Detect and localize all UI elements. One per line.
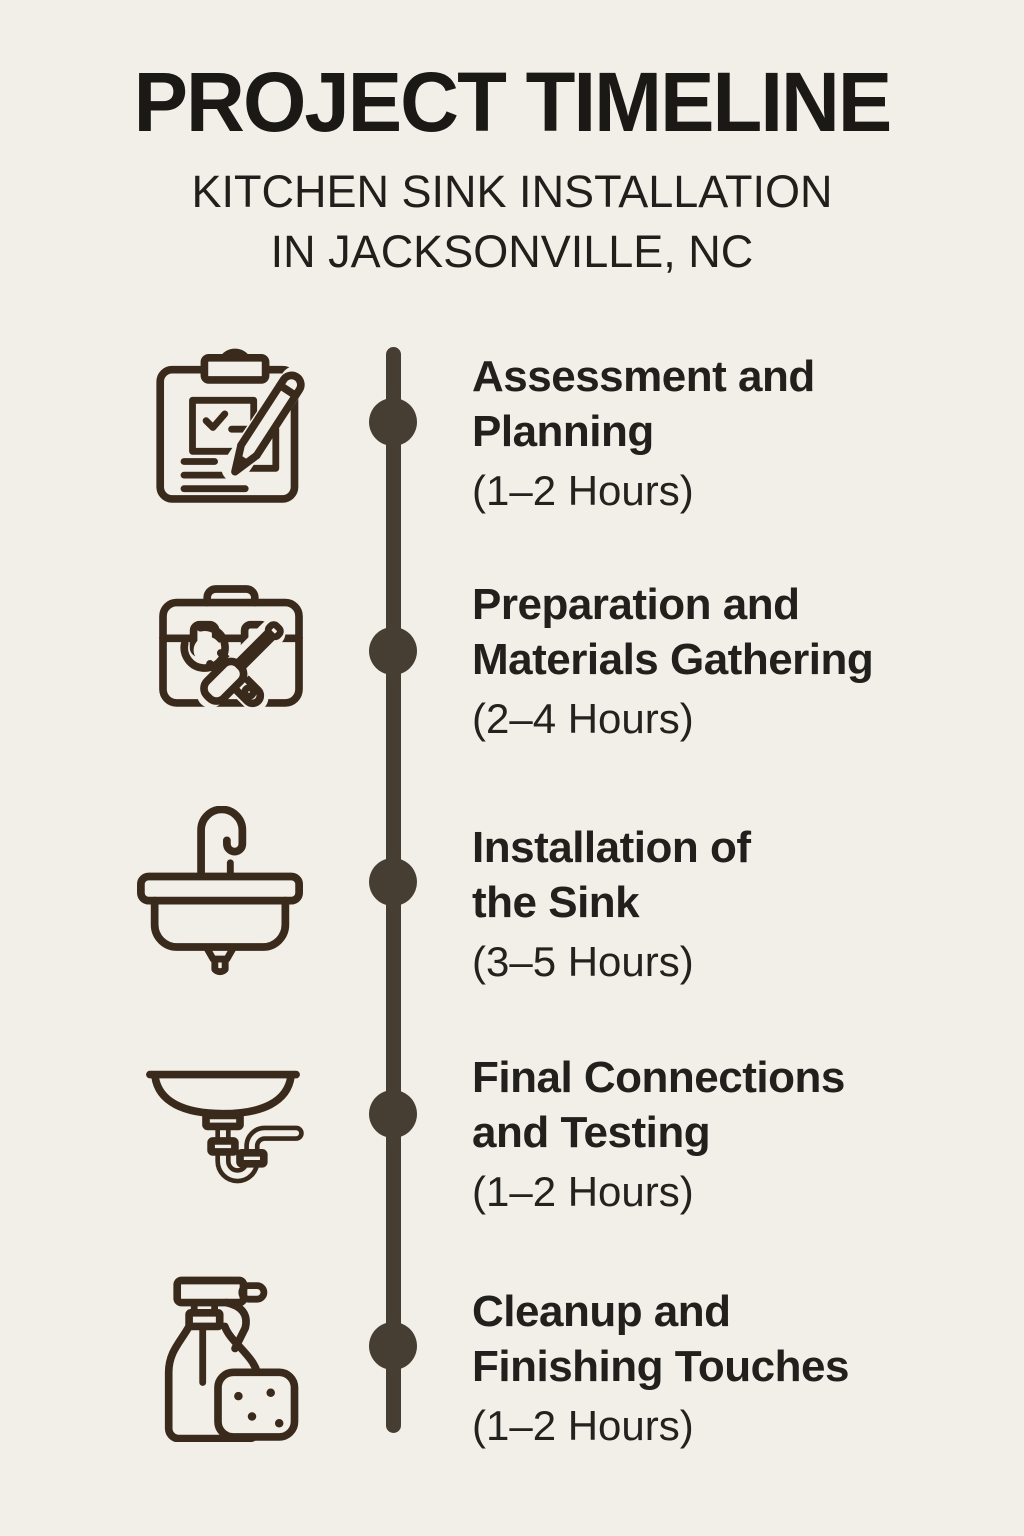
kitchen-sink-icon — [133, 806, 307, 978]
timeline-item-cleanup: Cleanup and Finishing Touches (1–2 Hours… — [472, 1284, 849, 1451]
page-subtitle: KITCHEN SINK INSTALLATION IN JACKSONVILL… — [0, 162, 1024, 282]
timeline-dot — [369, 398, 417, 446]
timeline-item-installation: Installation of the Sink (3–5 Hours) — [472, 820, 751, 987]
subtitle-line: IN JACKSONVILLE, NC — [0, 222, 1024, 282]
drain-pipe-icon — [138, 1044, 308, 1214]
infographic-page: PROJECT TIMELINE KITCHEN SINK INSTALLATI… — [0, 0, 1024, 1536]
timeline-dot — [369, 1322, 417, 1370]
item-duration: (2–4 Hours) — [472, 694, 873, 744]
item-title: Assessment and Planning — [472, 349, 815, 459]
clipboard-pencil-icon — [150, 334, 320, 504]
item-duration: (3–5 Hours) — [472, 937, 751, 987]
item-title: Cleanup and Finishing Touches — [472, 1284, 849, 1394]
timeline-item-assessment: Assessment and Planning (1–2 Hours) — [472, 349, 815, 516]
item-duration: (1–2 Hours) — [472, 1167, 845, 1217]
item-title: Installation of the Sink — [472, 820, 751, 930]
timeline-item-preparation: Preparation and Materials Gathering (2–4… — [472, 577, 873, 744]
page-title: PROJECT TIMELINE — [15, 58, 1008, 146]
timeline-dot — [369, 858, 417, 906]
item-title: Final Connections and Testing — [472, 1050, 845, 1160]
item-duration: (1–2 Hours) — [472, 466, 815, 516]
item-title: Preparation and Materials Gathering — [472, 577, 873, 687]
subtitle-line: KITCHEN SINK INSTALLATION — [0, 162, 1024, 222]
item-duration: (1–2 Hours) — [472, 1401, 849, 1451]
timeline-item-final-connections: Final Connections and Testing (1–2 Hours… — [472, 1050, 845, 1217]
timeline-dot — [369, 1090, 417, 1138]
spray-bottle-sponge-icon — [150, 1272, 320, 1442]
toolbox-tools-icon — [146, 572, 316, 742]
timeline-dot — [369, 627, 417, 675]
